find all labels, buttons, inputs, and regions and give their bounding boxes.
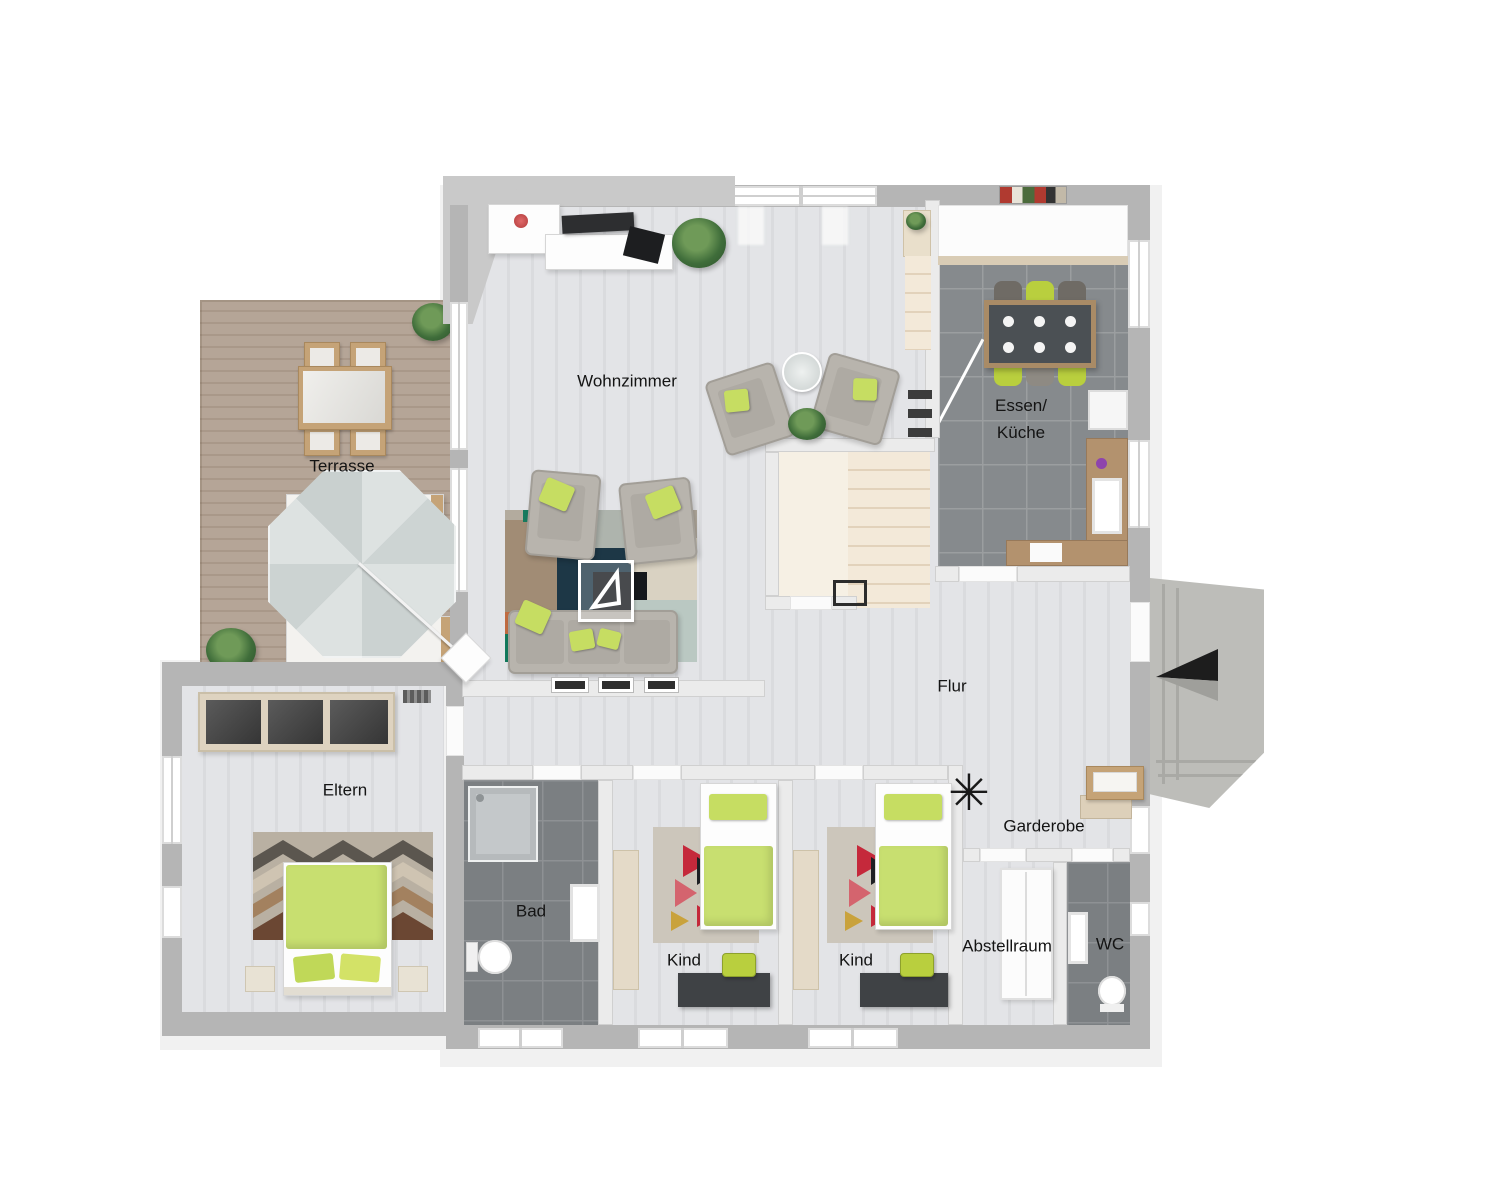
- bathroom-sink: [570, 884, 600, 942]
- window: [808, 1028, 898, 1048]
- room-label-kueche-line2: Küche: [995, 419, 1047, 446]
- room-label-terrasse: Terrasse: [309, 453, 374, 480]
- window: [162, 756, 182, 844]
- wc-toilet: [1096, 976, 1128, 1012]
- window: [725, 186, 877, 206]
- door-opening: [633, 765, 681, 780]
- wall-rooms-north: [462, 765, 533, 780]
- picture-frame: [645, 678, 678, 692]
- console-table: [833, 580, 867, 606]
- wall-stairs-north: [765, 438, 935, 452]
- room-label-eltern: Eltern: [323, 777, 367, 804]
- window: [1128, 440, 1150, 528]
- wing-wall-south: [162, 1012, 464, 1036]
- side-table: [782, 352, 822, 392]
- window: [638, 1028, 728, 1048]
- wall-rooms-north: [863, 765, 948, 780]
- kitchen-lowboard: [1006, 540, 1128, 566]
- shower: [468, 786, 538, 862]
- wing-wall-north: [162, 662, 464, 686]
- armchair: [618, 476, 698, 565]
- flower-vase: [1096, 458, 1107, 469]
- room-label-abstellraum: Abstellraum: [962, 933, 1052, 960]
- door-opening: [790, 596, 832, 610]
- entrance-arrow-icon: [1152, 645, 1222, 705]
- terrace-door: [450, 302, 468, 450]
- window: [478, 1028, 563, 1048]
- nightstand: [398, 966, 428, 992]
- coffee-table: [578, 560, 634, 622]
- wall-art: [1000, 187, 1066, 203]
- door-opening: [1072, 848, 1113, 862]
- room-label-garderobe: Garderobe: [1003, 813, 1084, 840]
- room-label-flur: Flur: [937, 673, 966, 700]
- desk-chair: [722, 953, 756, 977]
- garderobe-bench: [1086, 766, 1144, 800]
- wall-bad-kind: [598, 780, 613, 1025]
- kitchen-appliance: [1088, 390, 1128, 430]
- wing-wall-west: [162, 686, 182, 1036]
- wall-kitchen-flur: [935, 566, 959, 582]
- plant-icon: [906, 212, 926, 230]
- room-label-wohnzimmer: Wohnzimmer: [577, 368, 677, 395]
- room-label-wc: WC: [1096, 931, 1124, 958]
- window: [1128, 240, 1150, 328]
- door-opening: [446, 706, 464, 756]
- wall-vent: [403, 690, 431, 703]
- window: [162, 886, 182, 938]
- window: [1130, 806, 1150, 854]
- exterior-wall-west: [450, 205, 468, 697]
- wardrobe: [198, 692, 395, 752]
- wall-abstell-wc: [1053, 862, 1067, 1025]
- toilet: [466, 940, 512, 974]
- wall-garderobe-south: [1026, 848, 1072, 862]
- wall-kitchen-flur: [1017, 566, 1130, 582]
- curtain: [738, 207, 764, 245]
- kid-wardrobe: [613, 850, 639, 990]
- terrace-table: [298, 366, 392, 430]
- kitchen-sink: [1092, 478, 1122, 534]
- wc-sink: [1068, 912, 1088, 964]
- door-opening: [980, 848, 1026, 862]
- vase: [514, 214, 528, 228]
- desk: [860, 973, 948, 1007]
- kid-bed: [875, 783, 952, 930]
- room-label-kind-1: Kind: [667, 947, 701, 974]
- terrace-chair: [350, 426, 386, 456]
- window: [1130, 902, 1150, 936]
- door-opening: [533, 765, 581, 780]
- picture-frame: [599, 678, 633, 692]
- kitchen-counter-edge: [938, 256, 1128, 265]
- plant-icon: [788, 408, 826, 440]
- tv-screen: [562, 212, 635, 234]
- radiator: [908, 409, 932, 418]
- stair-vestibule: [779, 452, 848, 596]
- entrance-door: [1130, 602, 1150, 662]
- nightstand: [245, 966, 275, 992]
- door-opening: [959, 566, 1017, 582]
- wall-kind-kind: [778, 780, 793, 1025]
- wall-garderobe-south: [1113, 848, 1130, 862]
- coat-rack-icon: ✳: [948, 768, 990, 818]
- picture-frame: [552, 678, 588, 692]
- wall-stairs-west: [765, 452, 779, 596]
- wall-garderobe-south: [963, 848, 980, 862]
- wall-rooms-north: [581, 765, 633, 780]
- floorplan-canvas: ✳: [0, 0, 1500, 1200]
- kid-wardrobe: [793, 850, 819, 990]
- curtain: [822, 207, 848, 245]
- room-label-bad: Bad: [516, 898, 546, 925]
- kitchen-counter-north: [938, 205, 1128, 259]
- room-label-kind-2: Kind: [839, 947, 873, 974]
- desk: [678, 973, 770, 1007]
- armchair: [524, 469, 601, 561]
- room-label-essen-kueche: Essen/ Küche: [995, 392, 1047, 446]
- wall-rooms-north: [681, 765, 815, 780]
- plant-icon: [672, 218, 726, 268]
- stair-top-flight: [905, 256, 931, 350]
- radiator: [908, 390, 932, 399]
- double-bed: [283, 862, 392, 996]
- radiator: [908, 428, 932, 437]
- door-opening: [815, 765, 863, 780]
- kid-bed: [700, 783, 777, 930]
- terrace-chair: [304, 426, 340, 456]
- room-label-essen-line1: Essen/: [995, 392, 1047, 419]
- desk-chair: [900, 953, 934, 977]
- dining-table: [984, 300, 1096, 368]
